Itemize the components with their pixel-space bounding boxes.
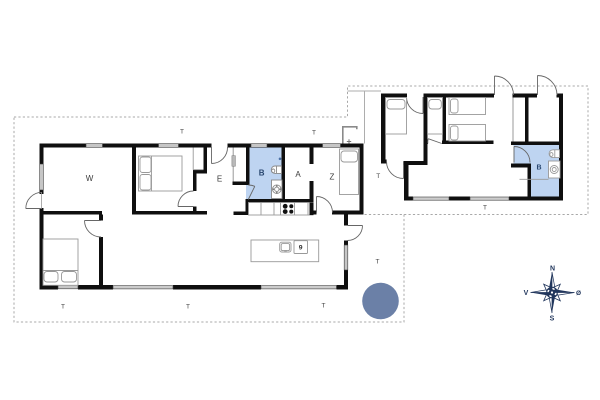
svg-text:T: T xyxy=(312,130,316,137)
svg-text:Z: Z xyxy=(330,173,335,182)
svg-text:W: W xyxy=(86,174,94,183)
svg-text:N: N xyxy=(550,265,555,272)
svg-text:V: V xyxy=(524,290,529,297)
svg-text:E: E xyxy=(217,175,222,184)
svg-text:T: T xyxy=(322,303,326,310)
svg-text:B: B xyxy=(259,168,265,177)
svg-text:T: T xyxy=(376,259,380,266)
svg-text:9: 9 xyxy=(299,245,303,252)
svg-text:T: T xyxy=(376,173,380,180)
svg-text:T: T xyxy=(186,304,190,311)
svg-text:T: T xyxy=(483,205,487,212)
svg-text:B: B xyxy=(536,165,541,172)
svg-text:A: A xyxy=(295,170,301,179)
svg-text:S: S xyxy=(550,315,555,322)
svg-text:Ø: Ø xyxy=(576,290,581,297)
svg-text:T: T xyxy=(180,129,184,136)
svg-text:T: T xyxy=(61,304,65,311)
